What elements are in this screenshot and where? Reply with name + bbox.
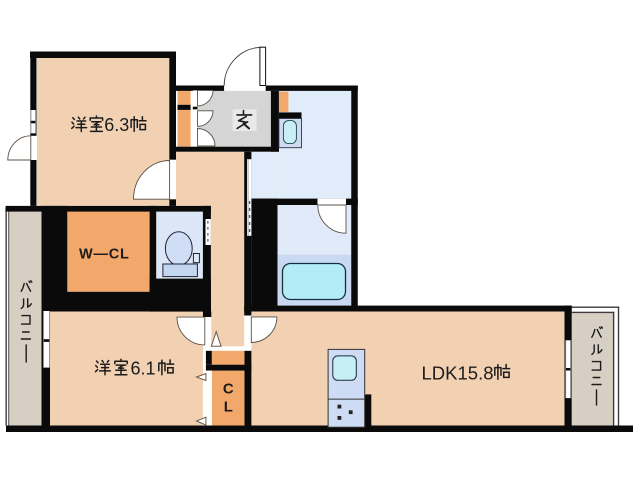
svg-text:W—CL: W—CL [79, 246, 130, 262]
svg-text:6.3: 6.3 [104, 115, 129, 135]
svg-text:LDK15.8: LDK15.8 [422, 363, 494, 384]
svg-text:L: L [224, 398, 233, 415]
svg-text:C: C [223, 380, 234, 397]
svg-text:6.1: 6.1 [131, 358, 156, 378]
